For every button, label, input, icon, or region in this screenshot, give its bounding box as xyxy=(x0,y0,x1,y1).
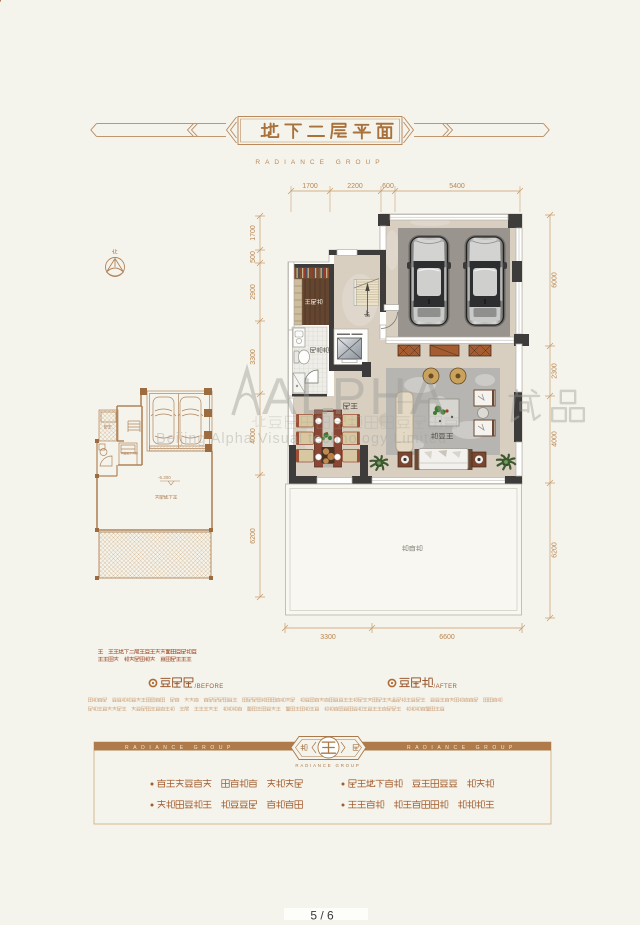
svg-text:RADIANCE GROUP: RADIANCE GROUP xyxy=(295,763,360,768)
svg-text:-6.300: -6.300 xyxy=(158,475,171,480)
svg-text:6200: 6200 xyxy=(250,528,257,544)
svg-text:2300: 2300 xyxy=(552,363,559,379)
svg-text:33006600: 33006600 xyxy=(320,634,455,641)
svg-text:5 / 6: 5 / 6 xyxy=(310,909,334,921)
svg-text:500: 500 xyxy=(250,251,257,263)
svg-text:RADIANCE GROUP: RADIANCE GROUP xyxy=(125,745,235,751)
svg-text:RADIANCE GROUP: RADIANCE GROUP xyxy=(255,159,384,166)
svg-text:6000: 6000 xyxy=(552,272,559,288)
svg-text:4000: 4000 xyxy=(552,431,559,447)
svg-text:3300: 3300 xyxy=(250,349,257,365)
svg-text:/AFTER: /AFTER xyxy=(434,684,458,690)
svg-text:ALPHA: ALPHA xyxy=(262,368,448,426)
svg-text:170022006005400: 170022006005400 xyxy=(302,183,465,190)
svg-text:Beijing Alpha Visual technolog: Beijing Alpha Visual technology Limited xyxy=(156,431,447,447)
svg-text:2900: 2900 xyxy=(250,284,257,300)
svg-text:/BEFORE: /BEFORE xyxy=(195,684,224,690)
svg-text:RADIANCE GROUP: RADIANCE GROUP xyxy=(407,745,517,751)
svg-text:6200: 6200 xyxy=(552,542,559,558)
svg-text:1700: 1700 xyxy=(250,225,257,241)
